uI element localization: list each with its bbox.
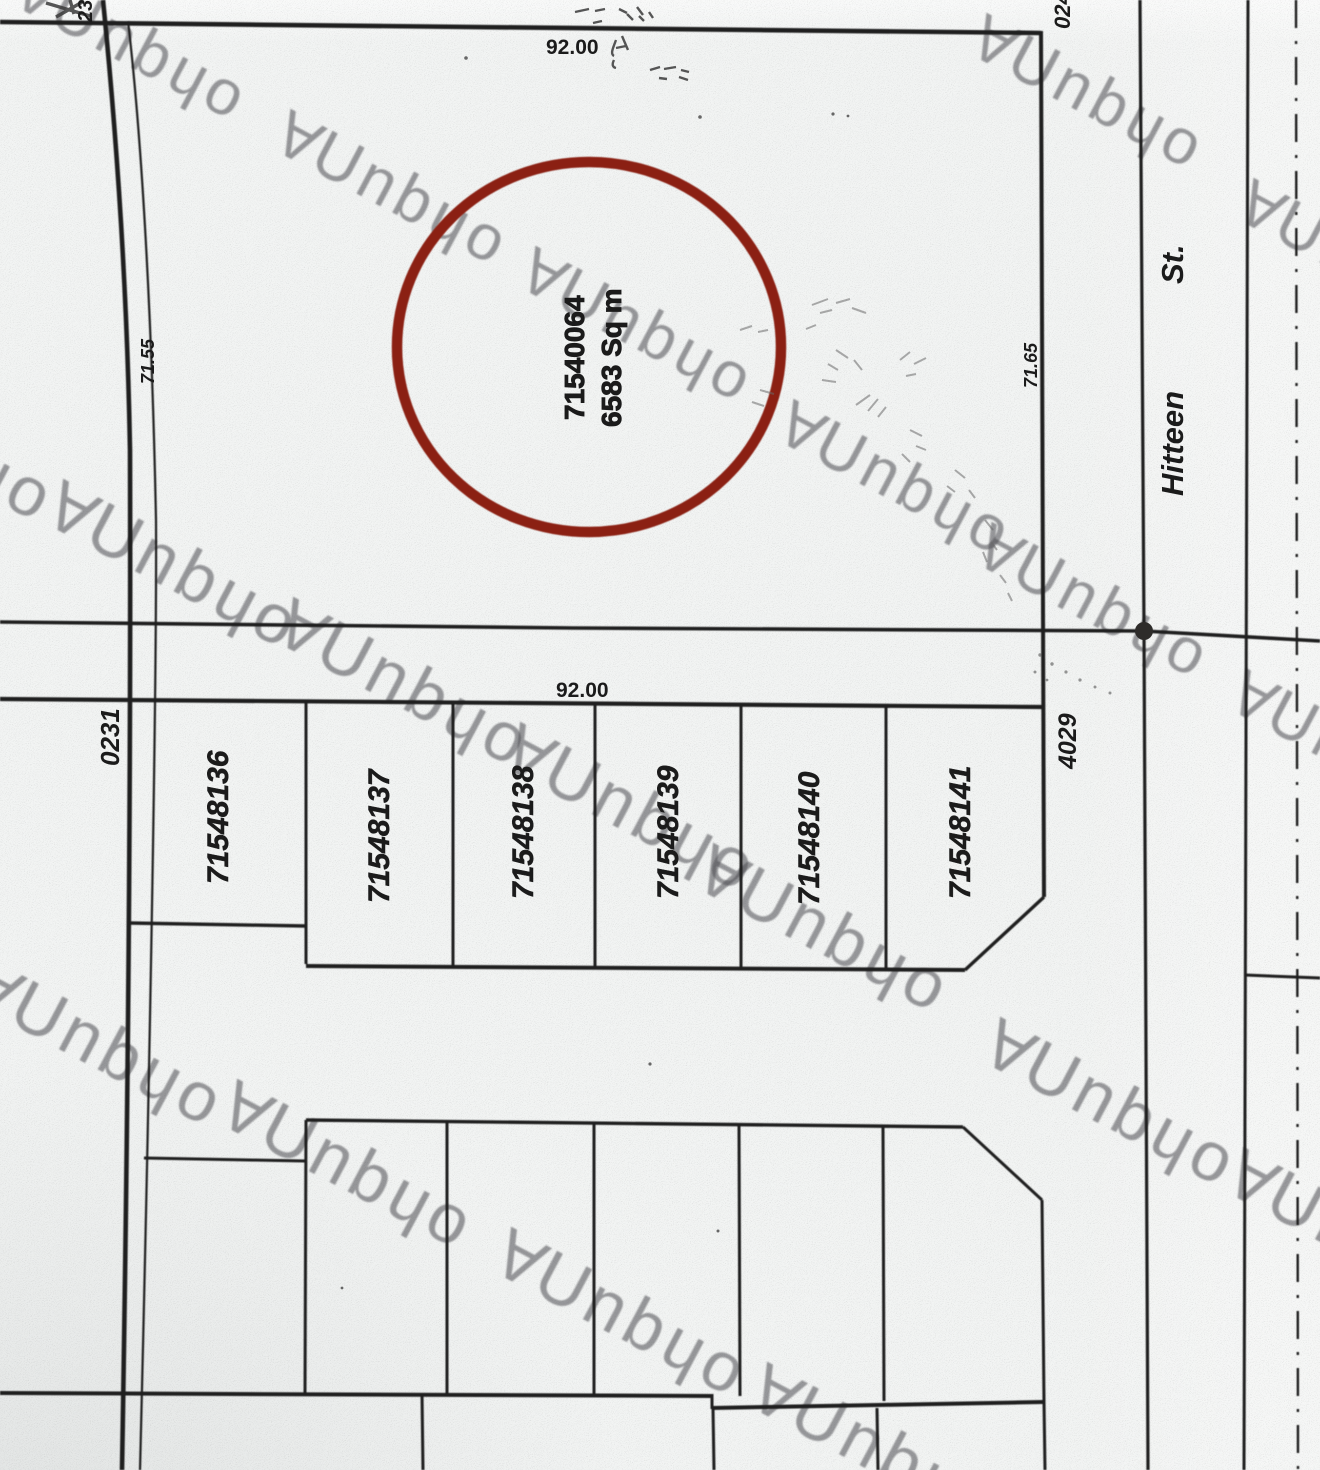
svg-text:71548140: 71548140 xyxy=(793,771,826,905)
svg-text:71548136: 71548136 xyxy=(202,750,235,884)
svg-text:St.: St. xyxy=(1155,244,1190,284)
svg-text:71.65: 71.65 xyxy=(1021,342,1041,388)
svg-text:71548137: 71548137 xyxy=(363,768,396,903)
svg-text:71548138: 71548138 xyxy=(507,765,540,899)
svg-text:92.00: 92.00 xyxy=(556,679,609,702)
svg-text:71540064: 71540064 xyxy=(559,295,590,420)
svg-text:92.00: 92.00 xyxy=(546,36,599,59)
svg-text:71.55: 71.55 xyxy=(138,338,158,384)
svg-text:0231: 0231 xyxy=(95,708,125,766)
svg-text:71548141: 71548141 xyxy=(944,766,977,899)
svg-text:4029: 4029 xyxy=(1054,713,1082,770)
svg-text:024: 024 xyxy=(1050,0,1075,29)
svg-text:6583 Sq m: 6583 Sq m xyxy=(596,288,627,427)
svg-text:Hitteen: Hitteen xyxy=(1155,391,1190,496)
svg-text:71548139: 71548139 xyxy=(652,765,685,899)
svg-text:23: 23 xyxy=(75,0,97,23)
